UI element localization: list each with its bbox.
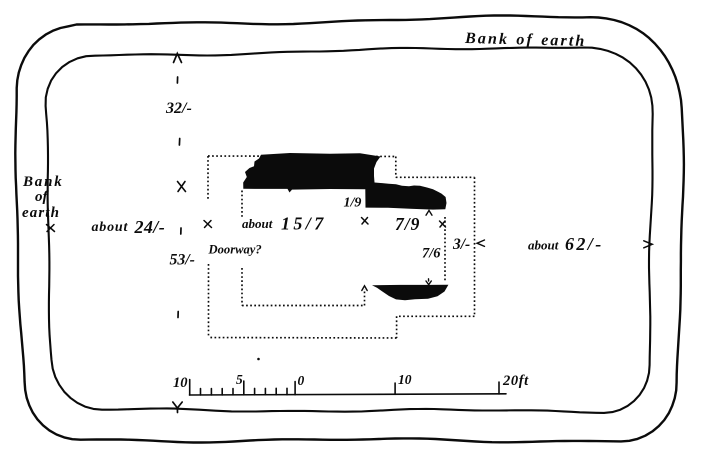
svg-text:5: 5 — [236, 372, 243, 387]
svg-text:10: 10 — [173, 375, 188, 391]
svg-text:1/9: 1/9 — [344, 196, 362, 211]
svg-text:7/6: 7/6 — [422, 246, 441, 262]
svg-text:3/-: 3/- — [452, 236, 470, 253]
svg-text:Doorway?: Doorway? — [208, 243, 262, 257]
svg-text:Bank: Bank — [22, 174, 64, 190]
svg-text:of: of — [35, 189, 50, 205]
svg-text:earth: earth — [22, 205, 60, 221]
svg-text:53/-: 53/- — [170, 252, 195, 269]
svg-text:15/7: 15/7 — [281, 214, 327, 234]
svg-text:20ft: 20ft — [502, 373, 529, 389]
svg-text:62/-: 62/- — [565, 234, 604, 254]
svg-text:about: about — [92, 220, 129, 235]
svg-text:10: 10 — [398, 372, 412, 387]
svg-text:about: about — [528, 238, 559, 253]
svg-text:Bank of earth: Bank of earth — [464, 30, 587, 50]
svg-text:0: 0 — [298, 373, 305, 388]
svg-text:7/9: 7/9 — [395, 214, 420, 234]
svg-text:32/-: 32/- — [165, 100, 192, 117]
svg-text:24/-: 24/- — [134, 217, 166, 237]
svg-text:about: about — [242, 216, 273, 231]
